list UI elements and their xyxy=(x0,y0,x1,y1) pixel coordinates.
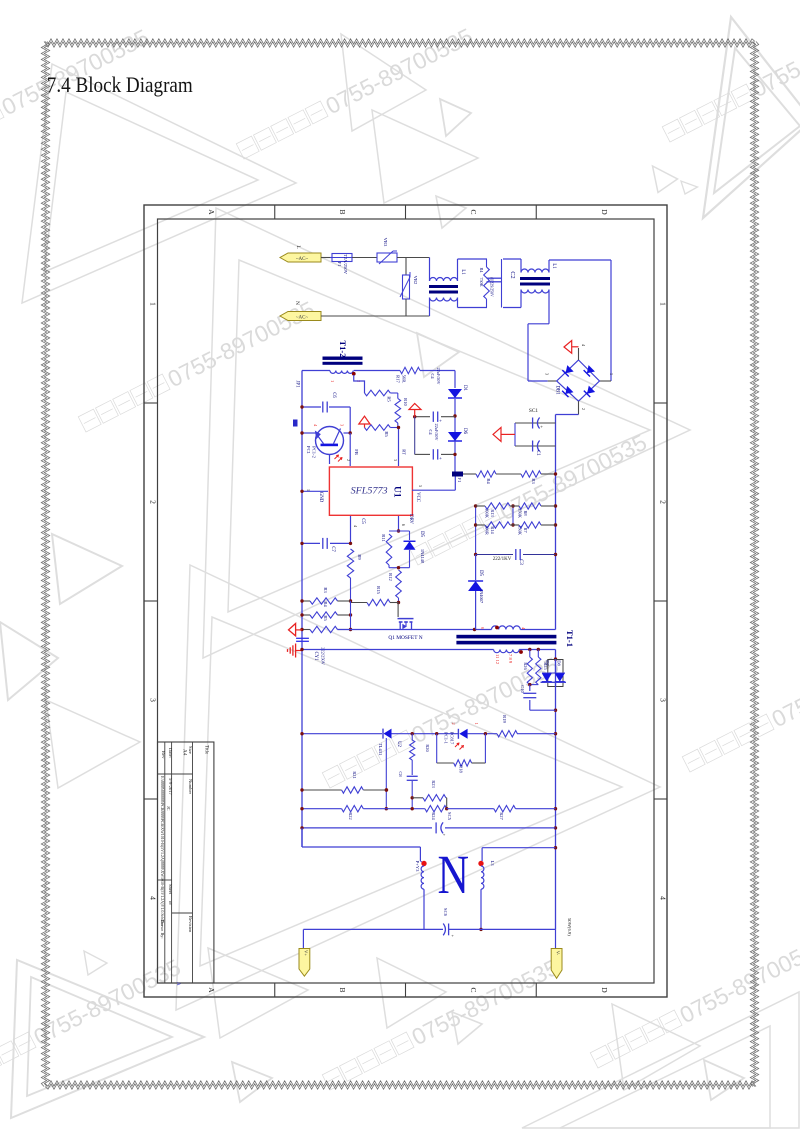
svg-text:V+: V+ xyxy=(304,950,309,956)
svg-text:C4: C4 xyxy=(430,373,435,379)
svg-text:JC: JC xyxy=(166,806,171,811)
svg-text:100K: 100K xyxy=(484,508,489,519)
svg-text:D1: D1 xyxy=(462,385,467,392)
svg-text:RT: RT xyxy=(402,449,407,455)
svg-text:Title: Title xyxy=(204,745,209,755)
svg-text:R3: R3 xyxy=(531,478,536,484)
svg-text:of: of xyxy=(168,901,173,905)
svg-text:B: B xyxy=(338,987,347,992)
svg-text:1N4007: 1N4007 xyxy=(479,589,484,604)
svg-text:PC1-2: PC1-2 xyxy=(312,446,317,458)
svg-text:R4: R4 xyxy=(486,478,491,484)
svg-text:CY1: CY1 xyxy=(313,651,318,661)
svg-text:5: 5 xyxy=(418,485,423,487)
svg-text:VR2: VR2 xyxy=(413,276,418,285)
svg-text:D8: D8 xyxy=(557,660,562,666)
svg-text:D: D xyxy=(600,987,609,993)
svg-text:+: + xyxy=(451,933,454,938)
svg-text:VR3: VR3 xyxy=(383,238,388,247)
svg-text:R24: R24 xyxy=(431,812,436,820)
svg-text:N: N xyxy=(294,301,300,305)
svg-text:E:\8888\888888\PCB8888PCB\XW10: E:\8888\888888\PCB8888PCB\XW1010-B(5V1.2… xyxy=(160,776,165,926)
svg-text:R19: R19 xyxy=(502,715,507,723)
svg-text:C: C xyxy=(469,209,478,214)
svg-text:R9: R9 xyxy=(357,554,362,560)
svg-text:2: 2 xyxy=(659,500,668,504)
svg-text:Q1 MOSFET N: Q1 MOSFET N xyxy=(388,635,422,641)
svg-text:B: B xyxy=(338,209,347,214)
svg-text:V-: V- xyxy=(556,951,561,956)
svg-text:P+Y3: P+Y3 xyxy=(415,861,420,872)
svg-text:TL431: TL431 xyxy=(378,743,383,756)
svg-text:D: D xyxy=(600,209,609,215)
svg-text:U1: U1 xyxy=(392,486,402,498)
svg-text:R26: R26 xyxy=(523,662,528,670)
svg-text:C6: C6 xyxy=(331,392,336,398)
svg-text:100R: 100R xyxy=(484,525,489,535)
svg-text:L1: L1 xyxy=(551,263,556,269)
svg-text:7 8 9: 7 8 9 xyxy=(508,654,513,664)
svg-text:222/1KV: 222/1KV xyxy=(493,557,512,562)
svg-text:R17: R17 xyxy=(396,375,401,383)
svg-text:C2: C2 xyxy=(509,271,516,278)
svg-text:R5: R5 xyxy=(387,396,392,402)
svg-text:FB: FB xyxy=(354,449,359,455)
svg-text:50W(6.9): 50W(6.9) xyxy=(567,918,572,936)
svg-text:PC817: PC817 xyxy=(450,732,455,745)
svg-text:N: N xyxy=(438,844,470,905)
svg-text:SFL5773: SFL5773 xyxy=(351,486,388,496)
svg-text:L3: L3 xyxy=(490,860,495,866)
svg-text:D5: D5 xyxy=(478,570,483,576)
svg-text:6: 6 xyxy=(401,524,406,526)
svg-text:VCC: VCC xyxy=(415,492,420,502)
svg-text:R8: R8 xyxy=(523,510,528,516)
svg-text:5-9-2017: 5-9-2017 xyxy=(168,778,173,796)
svg-text:R11: R11 xyxy=(381,534,386,542)
svg-text:SC5: SC5 xyxy=(447,812,452,821)
svg-text:R14: R14 xyxy=(490,526,495,534)
svg-text:C4: C4 xyxy=(428,429,433,435)
svg-text:(U22S/250V: (U22S/250V xyxy=(490,277,494,297)
svg-text:GND: GND xyxy=(318,492,323,503)
svg-text:Date:: Date: xyxy=(168,748,173,758)
svg-text:~AC~: ~AC~ xyxy=(296,316,309,321)
svg-text:PC1-1: PC1-1 xyxy=(444,732,449,744)
svg-text:~AC~: ~AC~ xyxy=(296,257,309,262)
svg-text:+: + xyxy=(439,457,442,462)
svg-text:4: 4 xyxy=(149,896,158,900)
svg-text:1: 1 xyxy=(474,723,479,725)
svg-text:4: 4 xyxy=(659,896,668,900)
svg-text:1: 1 xyxy=(659,302,668,306)
svg-text:D7: D7 xyxy=(545,660,550,666)
svg-text:Drawn By:: Drawn By: xyxy=(160,920,165,939)
svg-text:2: 2 xyxy=(346,459,351,461)
svg-text:T1-1: T1-1 xyxy=(565,630,575,647)
svg-text:T2A/250V: T2A/250V xyxy=(343,254,348,275)
svg-text:C10: C10 xyxy=(520,685,525,693)
svg-text:56R.: 56R. xyxy=(402,375,407,384)
svg-text:F1: F1 xyxy=(337,262,342,268)
svg-text:A: A xyxy=(207,209,216,215)
svg-text:SC6: SC6 xyxy=(443,908,448,917)
svg-text:D5: D5 xyxy=(419,531,424,537)
svg-text:R10: R10 xyxy=(403,398,408,406)
svg-text:A: A xyxy=(207,987,216,993)
svg-text:+: + xyxy=(443,832,446,837)
svg-text:22uF/50V: 22uF/50V xyxy=(434,424,439,441)
svg-text:R21: R21 xyxy=(352,771,357,778)
svg-text:R13: R13 xyxy=(490,509,495,517)
svg-text:Size: Size xyxy=(188,746,193,754)
svg-text:22uF/50V: 22uF/50V xyxy=(436,368,441,385)
svg-text:SC1: SC1 xyxy=(529,408,539,414)
svg-text:R5: R5 xyxy=(323,615,328,621)
svg-text:750K: 750K xyxy=(479,277,484,286)
svg-text:1: 1 xyxy=(149,302,158,306)
svg-text:3: 3 xyxy=(659,698,668,702)
svg-text:L1: L1 xyxy=(460,269,465,275)
svg-text:R27: R27 xyxy=(499,812,504,820)
svg-text:1: 1 xyxy=(330,380,335,382)
svg-text:3: 3 xyxy=(149,698,158,702)
svg-text:Revision: Revision xyxy=(188,916,193,933)
svg-text:R7: R7 xyxy=(523,527,528,533)
svg-text:+: + xyxy=(540,426,543,431)
svg-text:C: C xyxy=(469,987,478,992)
svg-text:DB1: DB1 xyxy=(555,385,560,395)
svg-text:D6: D6 xyxy=(462,428,467,435)
svg-text:R4: R4 xyxy=(323,601,328,607)
svg-text:JP1: JP1 xyxy=(295,381,300,389)
svg-text:11 12: 11 12 xyxy=(495,654,500,665)
svg-text:C3: C3 xyxy=(518,559,523,565)
svg-text:1: 1 xyxy=(306,489,311,491)
svg-text:A: A xyxy=(175,982,180,986)
svg-text:150K: 150K xyxy=(518,525,523,536)
svg-text:1: 1 xyxy=(609,373,614,375)
svg-text:T1-2: T1-2 xyxy=(338,341,348,358)
svg-text:7.4 Block Diagram: 7.4 Block Diagram xyxy=(47,72,193,97)
svg-text:DRV: DRV xyxy=(408,514,413,524)
svg-text:2: 2 xyxy=(149,500,158,504)
svg-text:Number: Number xyxy=(188,779,193,795)
svg-text:C7: C7 xyxy=(330,546,335,552)
svg-text:R23: R23 xyxy=(431,780,436,788)
svg-text:C5: C5 xyxy=(360,518,365,524)
svg-text:Rev: Rev xyxy=(161,751,166,759)
svg-text:Sheet: Sheet xyxy=(168,884,173,895)
svg-text:2: 2 xyxy=(451,723,456,725)
svg-text:F1: F1 xyxy=(457,478,462,483)
svg-text:PC1: PC1 xyxy=(306,446,311,455)
svg-text:R15: R15 xyxy=(376,586,381,594)
svg-text:3: 3 xyxy=(393,459,398,461)
svg-text:150K: 150K xyxy=(518,508,523,519)
svg-text:U2: U2 xyxy=(396,741,401,747)
svg-text:C8: C8 xyxy=(398,771,403,777)
svg-text:A4: A4 xyxy=(182,749,188,756)
svg-text:R5: R5 xyxy=(384,431,389,437)
svg-text:R22: R22 xyxy=(348,812,353,819)
svg-text:R18: R18 xyxy=(459,765,464,773)
svg-text:1N4148: 1N4148 xyxy=(420,549,425,564)
svg-text:2: 2 xyxy=(581,408,586,410)
svg-text:R3: R3 xyxy=(323,587,328,593)
svg-text:R20: R20 xyxy=(425,744,430,752)
svg-text:R12: R12 xyxy=(388,573,393,581)
svg-text:C1: C1 xyxy=(535,450,540,456)
